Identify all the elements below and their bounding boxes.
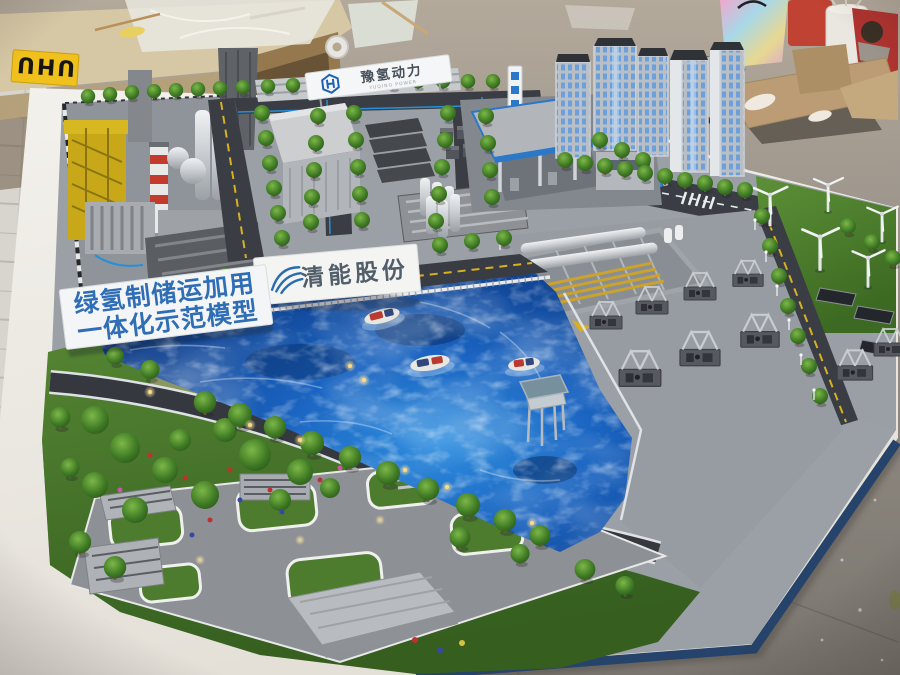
workshop-photo: UHU [0,0,900,675]
scene-svg: UHU [0,0,900,675]
vignette [0,0,900,675]
